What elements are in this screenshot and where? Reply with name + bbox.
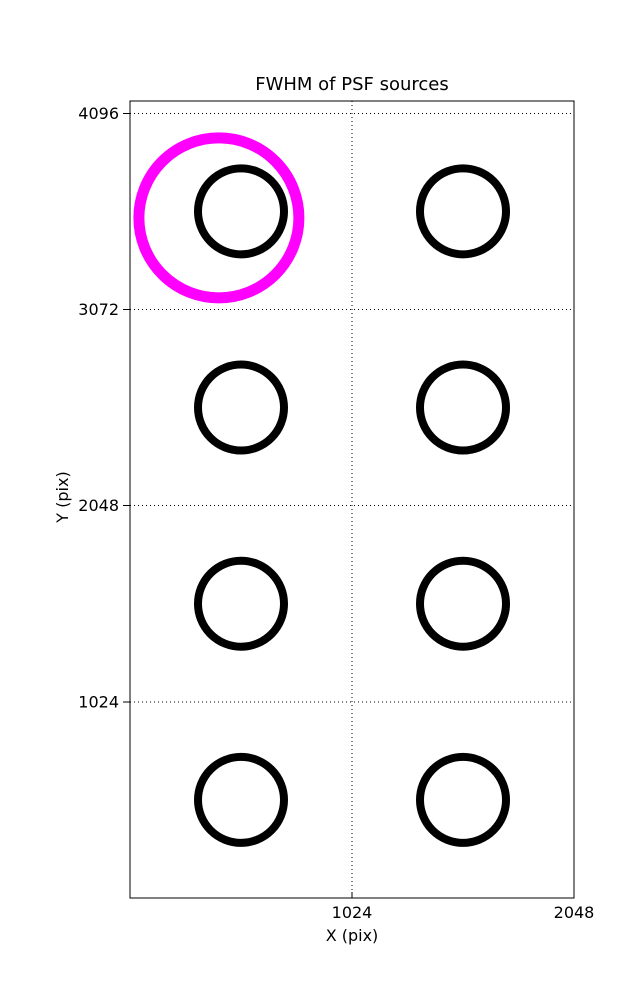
y-tick-label: 4096 bbox=[78, 104, 119, 123]
x-tick-label: 2048 bbox=[554, 903, 595, 922]
plot-area: 102420483072409610242048 bbox=[0, 0, 637, 1000]
figure-canvas: 102420483072409610242048 FWHM of PSF sou… bbox=[0, 0, 637, 1000]
y-tick-label: 2048 bbox=[78, 496, 119, 515]
psf-source-circles bbox=[420, 168, 506, 254]
x-tick-label: 1024 bbox=[332, 903, 373, 922]
chart-title: FWHM of PSF sources bbox=[130, 74, 574, 95]
psf-source-circles bbox=[198, 168, 284, 254]
psf-source-circles bbox=[198, 365, 284, 451]
psf-source-circles bbox=[420, 561, 506, 647]
psf-source-circles bbox=[198, 757, 284, 843]
x-axis-label: X (pix) bbox=[130, 926, 574, 945]
psf-source-circles bbox=[420, 365, 506, 451]
y-tick-label: 3072 bbox=[78, 300, 119, 319]
psf-source-circles bbox=[198, 561, 284, 647]
y-axis-label: Y (pix) bbox=[53, 447, 73, 547]
highlighted-source-circle bbox=[139, 138, 299, 298]
y-tick-label: 1024 bbox=[78, 692, 119, 711]
psf-source-circles bbox=[420, 757, 506, 843]
